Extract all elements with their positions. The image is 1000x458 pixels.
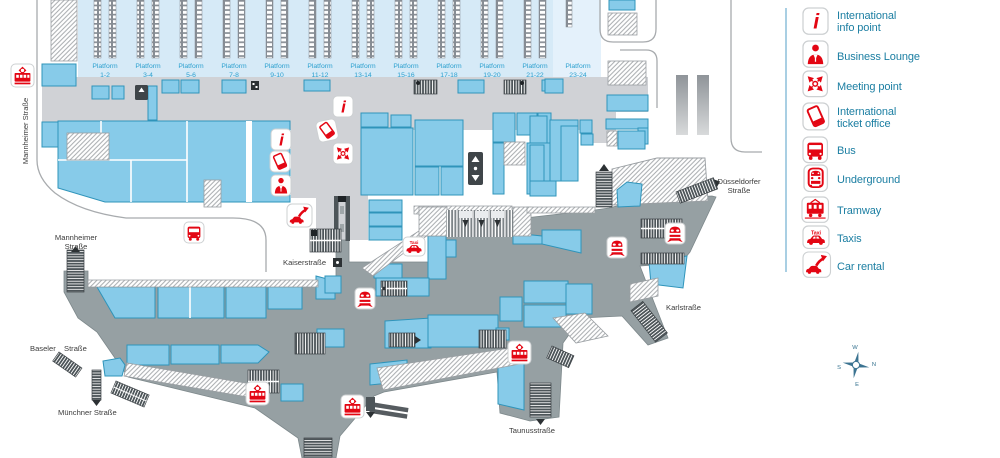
svg-text:Meeting point: Meeting point xyxy=(837,81,902,93)
svg-text:Platform: Platform xyxy=(565,63,591,70)
svg-text:N: N xyxy=(872,362,876,368)
svg-text:Underground: Underground xyxy=(837,174,900,186)
svg-text:Baseler: Baseler xyxy=(30,344,56,353)
svg-text:Business Lounge: Business Lounge xyxy=(837,51,920,63)
svg-text:Platform: Platform xyxy=(178,63,204,70)
svg-text:Platform: Platform xyxy=(479,63,505,70)
svg-text:Platform: Platform xyxy=(221,63,247,70)
svg-text:W: W xyxy=(852,345,858,351)
svg-text:Platform: Platform xyxy=(436,63,462,70)
svg-text:Taunusstraße: Taunusstraße xyxy=(509,426,555,435)
svg-text:Tramway: Tramway xyxy=(837,205,882,217)
svg-text:Karlstraße: Karlstraße xyxy=(666,303,701,312)
svg-text:Platform: Platform xyxy=(264,63,290,70)
svg-text:Platform: Platform xyxy=(350,63,376,70)
svg-text:E: E xyxy=(855,382,859,388)
svg-text:info point: info point xyxy=(837,22,881,34)
svg-text:Düsseldorfer: Düsseldorfer xyxy=(717,177,761,186)
svg-text:Straße: Straße xyxy=(64,344,87,353)
svg-text:Car rental: Car rental xyxy=(837,261,884,273)
svg-text:Platform: Platform xyxy=(522,63,548,70)
svg-text:Straße: Straße xyxy=(728,186,751,195)
svg-text:Platform: Platform xyxy=(307,63,333,70)
svg-text:S: S xyxy=(837,365,841,371)
svg-text:Straße: Straße xyxy=(65,242,88,251)
svg-text:Münchner Straße: Münchner Straße xyxy=(58,408,117,417)
svg-text:Mannheimer: Mannheimer xyxy=(55,233,98,242)
svg-text:Bus: Bus xyxy=(837,145,856,157)
svg-text:Mannheimer Straße: Mannheimer Straße xyxy=(21,98,30,164)
svg-text:Platform: Platform xyxy=(393,63,419,70)
svg-text:International: International xyxy=(837,10,896,22)
svg-text:Platform: Platform xyxy=(135,63,161,70)
svg-text:Kaiserstraße: Kaiserstraße xyxy=(283,258,326,267)
svg-text:ticket office: ticket office xyxy=(837,118,891,130)
svg-text:Platform: Platform xyxy=(92,63,118,70)
svg-text:Taxis: Taxis xyxy=(837,233,862,245)
svg-text:International: International xyxy=(837,106,896,118)
